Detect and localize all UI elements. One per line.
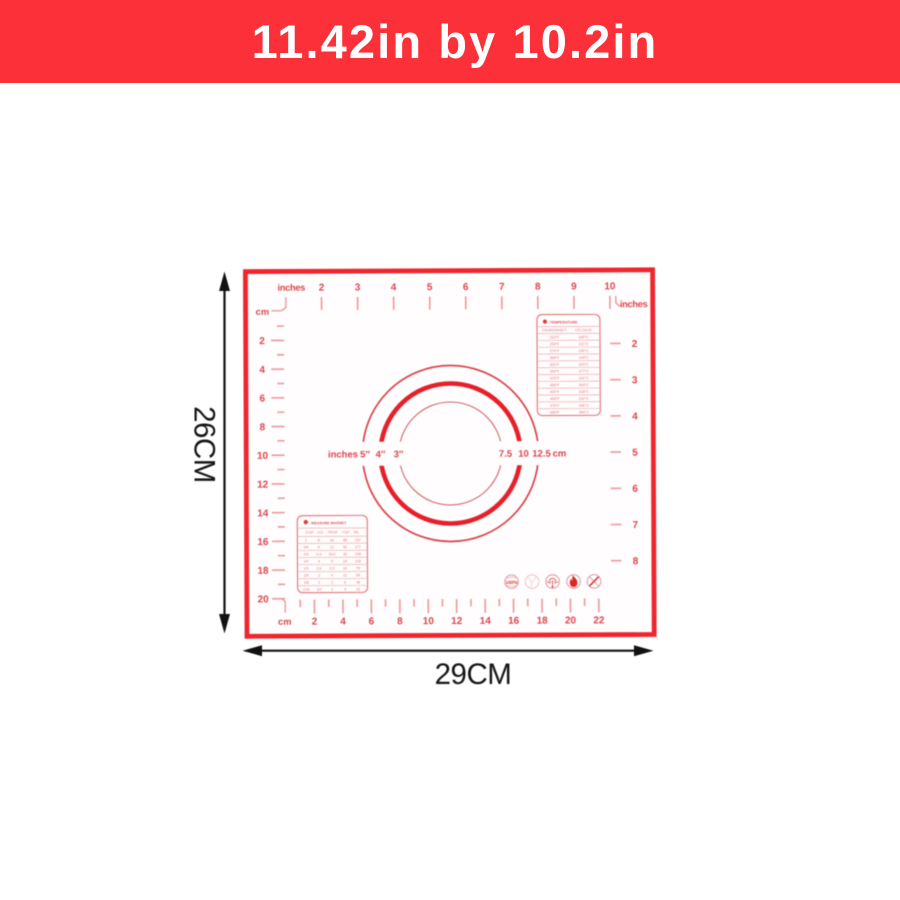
svg-text:6: 6 (463, 282, 469, 293)
svg-text:3″: 3″ (394, 449, 404, 460)
svg-text:1/8: 1/8 (304, 581, 309, 585)
svg-text:79: 79 (356, 566, 360, 570)
svg-text:275°F: 275°F (550, 349, 560, 353)
svg-text:260°C: 260°C (579, 410, 589, 414)
svg-text:350°F: 350°F (550, 370, 560, 374)
svg-text:100°C: 100°C (578, 335, 588, 339)
svg-text:16: 16 (508, 616, 520, 627)
svg-text:450°F: 450°F (550, 397, 560, 401)
svg-text:237: 237 (355, 538, 361, 542)
svg-text:CELSIUS: CELSIUS (575, 328, 592, 332)
svg-text:7.5: 7.5 (499, 449, 513, 460)
svg-text:1/2: 1/2 (317, 588, 322, 592)
svg-text:191°C: 191°C (579, 376, 589, 380)
svg-text:2.6: 2.6 (316, 567, 321, 571)
svg-text:7: 7 (499, 282, 505, 293)
svg-text:1: 1 (305, 538, 307, 542)
svg-text:12: 12 (343, 573, 347, 577)
svg-text:8: 8 (318, 538, 320, 542)
svg-text:149°C: 149°C (579, 356, 589, 360)
svg-text:325°F: 325°F (550, 363, 560, 367)
svg-text:1: 1 (331, 588, 333, 592)
svg-text:TEMPERATURE: TEMPERATURE (550, 320, 578, 324)
svg-text:2: 2 (319, 283, 325, 294)
svg-text:475°F: 475°F (550, 404, 560, 408)
svg-text:48: 48 (343, 538, 347, 542)
svg-text:4: 4 (259, 365, 265, 376)
svg-text:16: 16 (257, 537, 269, 548)
svg-text:500°F: 500°F (550, 411, 560, 415)
svg-text:22: 22 (593, 615, 605, 626)
svg-text:30: 30 (356, 580, 360, 584)
svg-text:212°F: 212°F (550, 335, 560, 339)
svg-text:6: 6 (344, 581, 346, 585)
svg-text:3: 3 (632, 375, 638, 386)
svg-text:2: 2 (331, 581, 333, 585)
svg-text:20: 20 (258, 594, 270, 605)
svg-text:4: 4 (331, 574, 333, 578)
svg-text:5: 5 (427, 282, 433, 293)
svg-text:121°C: 121°C (579, 342, 589, 346)
svg-text:8: 8 (535, 282, 541, 293)
svg-text:177°C: 177°C (579, 369, 589, 373)
svg-text:10.6: 10.6 (328, 552, 335, 556)
svg-text:cm: cm (278, 617, 291, 627)
svg-text:12: 12 (330, 545, 334, 549)
svg-text:26CM: 26CM (188, 406, 221, 483)
svg-text:250°F: 250°F (550, 342, 560, 346)
svg-text:246°C: 246°C (579, 404, 589, 408)
svg-text:cm: cm (553, 448, 567, 459)
svg-text:118: 118 (355, 559, 361, 563)
svg-text:375°F: 375°F (550, 376, 560, 380)
svg-text:4: 4 (391, 282, 397, 293)
svg-text:24: 24 (343, 559, 347, 563)
svg-text:4: 4 (632, 411, 638, 422)
svg-text:59: 59 (356, 573, 360, 577)
svg-text:18: 18 (537, 616, 549, 627)
svg-text:2: 2 (259, 336, 265, 347)
svg-text:14: 14 (257, 508, 269, 519)
svg-text:2: 2 (312, 617, 318, 628)
svg-text:16: 16 (330, 538, 334, 542)
svg-text:9: 9 (571, 281, 577, 292)
svg-text:inches: inches (620, 299, 648, 309)
svg-text:1/3: 1/3 (303, 567, 308, 571)
svg-text:29CM: 29CM (435, 658, 512, 691)
svg-text:400°F: 400°F (550, 383, 560, 387)
svg-text:15: 15 (356, 587, 360, 591)
svg-text:3: 3 (355, 282, 361, 293)
svg-text:5.3: 5.3 (329, 567, 334, 571)
svg-text:218°C: 218°C (579, 390, 589, 394)
svg-text:18: 18 (257, 566, 269, 577)
svg-text:8: 8 (260, 422, 266, 433)
svg-text:inches: inches (328, 449, 358, 460)
svg-text:177: 177 (355, 545, 361, 549)
svg-text:20: 20 (565, 615, 577, 626)
svg-text:10: 10 (518, 449, 529, 460)
svg-text:1: 1 (318, 581, 320, 585)
svg-text:1/16: 1/16 (303, 588, 310, 592)
svg-text:MEASURE MAGNET: MEASURE MAGNET (311, 521, 347, 525)
svg-text:10: 10 (257, 451, 269, 462)
svg-text:12: 12 (451, 616, 463, 627)
svg-text:5: 5 (632, 448, 638, 459)
svg-text:2: 2 (318, 574, 320, 578)
svg-text:10: 10 (423, 616, 435, 627)
svg-text:1/2: 1/2 (303, 560, 308, 564)
svg-text:16: 16 (343, 566, 347, 570)
svg-text:inches: inches (277, 283, 305, 293)
svg-text:300°F: 300°F (550, 356, 560, 360)
svg-text:158: 158 (355, 552, 361, 556)
svg-text:6: 6 (632, 484, 638, 495)
svg-text:100%: 100% (505, 580, 518, 586)
svg-text:8: 8 (331, 559, 333, 563)
svg-text:4: 4 (318, 559, 320, 563)
svg-text:FAHRENHEIT: FAHRENHEIT (542, 328, 567, 332)
svg-text:36: 36 (343, 545, 347, 549)
svg-text:204°C: 204°C (579, 383, 589, 387)
svg-text:2: 2 (632, 339, 638, 350)
svg-text:6: 6 (259, 394, 265, 405)
svg-text:cm: cm (256, 307, 269, 317)
svg-text:232°C: 232°C (579, 397, 589, 401)
svg-text:10: 10 (604, 281, 616, 292)
svg-text:4: 4 (340, 616, 346, 627)
svg-text:1/4: 1/4 (304, 574, 309, 578)
svg-text:6: 6 (369, 616, 375, 627)
svg-text:CUP · OZ · TBSP · TSP · ML: CUP · OZ · TBSP · TSP · ML (305, 530, 359, 534)
svg-text:135°C: 135°C (579, 349, 589, 353)
svg-text:425°F: 425°F (550, 390, 560, 394)
svg-text:2/3: 2/3 (303, 553, 308, 557)
svg-text:4″: 4″ (376, 449, 386, 460)
svg-text:3/4: 3/4 (303, 545, 308, 549)
svg-text:32: 32 (343, 552, 347, 556)
svg-text:7: 7 (633, 520, 639, 531)
svg-text:3: 3 (344, 588, 346, 592)
svg-text:6: 6 (318, 545, 320, 549)
svg-text:14: 14 (480, 616, 492, 627)
svg-text:8: 8 (397, 616, 403, 627)
svg-text:12: 12 (257, 480, 269, 491)
svg-text:8: 8 (633, 556, 639, 567)
svg-text:12.5: 12.5 (532, 449, 551, 460)
svg-text:163°C: 163°C (579, 363, 589, 367)
svg-text:5.3: 5.3 (316, 552, 321, 556)
svg-text:5″: 5″ (360, 449, 370, 460)
